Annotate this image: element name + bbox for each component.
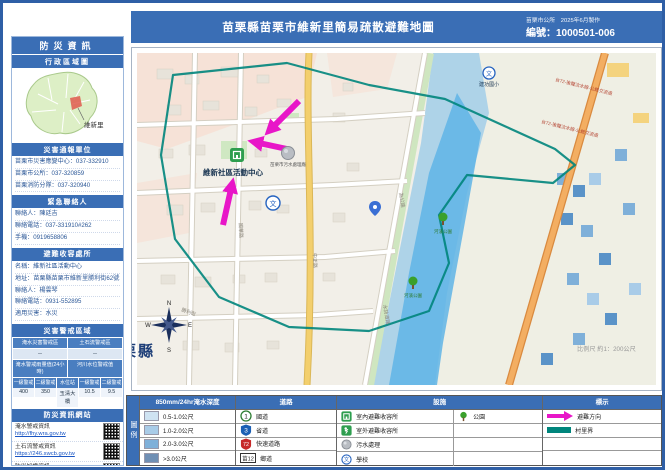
qr-code <box>103 463 120 466</box>
county-admin-map: 維新里 <box>12 69 123 141</box>
col-value: 400 <box>13 388 34 397</box>
title-bar: 苗栗縣苗栗市維新里簡易疏散避難地圖 苗栗市公所 2025年6月製作 編號：100… <box>131 11 662 43</box>
contact-line: 聯絡電話：037-331910#262 <box>15 221 120 233</box>
col-header: 一級警戒 <box>13 378 34 388</box>
shelter-line: 聯絡人：楊雲琴 <box>15 286 120 298</box>
flood-depth-label: >3.0公尺 <box>163 454 187 463</box>
facility-label: 公園 <box>473 412 485 421</box>
park-icon <box>458 411 469 422</box>
qr-code <box>103 443 120 460</box>
link-label: 土石流警戒資訊 <box>15 444 75 452</box>
flood-swatch <box>144 411 159 421</box>
flood-zone-value: － <box>13 349 67 359</box>
sidebar: 防災資訊 行政區域圖 維新里 災害通報單位 苗栗市災害應變中心：037-3329… <box>11 36 124 466</box>
county-watermark: 苗栗縣 <box>131 340 155 361</box>
legend-flood-column: 850mm/24hr淹水深度 0.5-1.0公尺 1.0-2.0公尺 2.0-3… <box>140 396 236 465</box>
facility-label: 室外避難收容所 <box>356 426 398 435</box>
col-header: 二級警戒 <box>35 378 56 388</box>
county-map-graphic: 維新里 <box>18 70 118 140</box>
shelter-line: 適用災害：水災 <box>15 309 120 321</box>
page-title: 苗栗縣苗栗市維新里簡易疏散避難地圖 <box>131 19 526 35</box>
contact-line: 手機：0919658806 <box>15 233 120 245</box>
scale-label: 比例尺 約1：200公尺 <box>577 345 636 353</box>
legend-marks-column: 標示 避難方向 村里界 <box>543 396 661 465</box>
marks-legend-header: 標示 <box>543 396 661 410</box>
expressway-icon: 72 <box>240 438 252 450</box>
col-header: 二級警戒 <box>101 378 122 388</box>
school-label: 建功國小 <box>479 81 499 88</box>
shelter-line: 聯絡電話：0931-552895 <box>15 297 120 309</box>
flood-swatch <box>144 453 159 463</box>
road-label: 省道 <box>256 426 268 435</box>
school-icon: 文 <box>341 454 352 465</box>
village-label: 維新里 <box>84 120 104 129</box>
contact-line: 聯絡人：陳廷吉 <box>15 209 120 221</box>
link-item: 淹水警戒資訊 http://fhy.wra.gov.tw <box>12 422 123 442</box>
col-header: 一級警戒 <box>79 378 100 388</box>
evacuation-map-page: 苗栗縣苗栗市維新里簡易疏散避難地圖 苗栗市公所 2025年6月製作 編號：100… <box>0 0 665 470</box>
link-url[interactable]: http://fhy.wra.gov.tw <box>15 431 66 439</box>
warning-threshold-table: 一級警戒400 二級警戒350 水位站玉清大橋 一級警戒10.5 二級警戒9.5 <box>13 378 122 407</box>
river-threshold-chip: 河川水位警戒值 <box>68 360 122 376</box>
legend-side-label: 圖例 <box>127 396 140 465</box>
indoor-shelter-icon <box>341 411 352 422</box>
street-label: 國華路 <box>237 223 245 238</box>
indoor-shelter-icon <box>230 148 244 162</box>
evacuation-direction-icon <box>547 413 573 420</box>
rain-threshold-chip: 淹水警戒雨量值(24小時) <box>13 360 67 376</box>
admin-map-title: 行政區域圖 <box>12 55 123 69</box>
col-header: 水位站 <box>57 378 78 388</box>
warning-zone-header: 災害警戒區域 <box>12 324 123 337</box>
svg-text:文: 文 <box>486 70 492 78</box>
village-boundary-icon <box>547 427 571 433</box>
col-value: 玉清大橋 <box>57 388 78 407</box>
link-item: 土石流警戒資訊 https://246.swcb.gov.tw <box>12 442 123 462</box>
link-url[interactable]: https://246.swcb.gov.tw <box>15 451 75 459</box>
report-line: 苗栗市災害應變中心：037-332910 <box>15 157 120 169</box>
compass-e: E <box>188 323 192 329</box>
shelter-line: 地址：苗栗縣苗栗市維新里勝利街62號1樓 <box>15 274 120 286</box>
contact-list: 聯絡人：陳廷吉 聯絡電話：037-331910#262 手機：091965880… <box>12 208 123 245</box>
outdoor-shelter-icon <box>341 425 352 436</box>
sewage-plant-icon <box>341 439 352 450</box>
link-item: 防災知識資訊 http://bobe168.tw <box>12 462 123 466</box>
shelter-line: 名稱：維新社區活動中心 <box>15 262 120 274</box>
road-label: 快速道路 <box>256 439 280 448</box>
sewage-plant-icon <box>282 147 295 160</box>
school-icon: 文 <box>483 67 495 79</box>
community-center-label: 維新社區活動中心 <box>203 167 263 177</box>
park-label: 河濱公園 <box>434 228 452 235</box>
park-label: 河濱公園 <box>404 292 422 299</box>
flood-depth-label: 0.5-1.0公尺 <box>163 412 194 421</box>
issuer-date: 苗栗市公所 2025年6月製作 <box>526 15 656 24</box>
svg-text:苗12: 苗12 <box>242 455 254 463</box>
facilities-legend-header: 設施 <box>337 396 542 410</box>
svg-text:3: 3 <box>244 427 248 434</box>
link-label: 防災知識資訊 <box>15 464 59 467</box>
debris-zone-value: － <box>68 349 122 359</box>
svg-text:1: 1 <box>244 414 248 421</box>
compass-w: W <box>145 323 151 329</box>
evacuation-map: 維新社區活動中心 文 文 建功國小 苗栗市污水處理廠 河濱公園 河濱公園 <box>137 53 656 385</box>
street-label: 中正路 <box>311 253 319 268</box>
mark-label: 村里界 <box>575 426 593 435</box>
flood-swatch <box>144 425 159 435</box>
flood-depth-label: 1.0-2.0公尺 <box>163 426 194 435</box>
qr-code <box>103 423 120 440</box>
svg-text:文: 文 <box>270 199 277 208</box>
doc-code-block: 苗栗市公所 2025年6月製作 編號：1000501-006 <box>526 15 662 39</box>
flood-legend-header: 850mm/24hr淹水深度 <box>140 396 235 410</box>
legend-bar: 圖例 850mm/24hr淹水深度 0.5-1.0公尺 1.0-2.0公尺 2.… <box>126 395 662 466</box>
flood-depth-label: 2.0-3.0公尺 <box>163 439 194 448</box>
roads-legend-header: 道路 <box>236 396 336 410</box>
report-line: 苗栗市公所：037-320859 <box>15 169 120 181</box>
national-highway-icon: 1 <box>240 410 252 422</box>
sewage-plant-label: 苗栗市污水處理廠 <box>270 161 306 168</box>
compass-n: N <box>167 301 171 307</box>
legend-facilities-column: 設施 室內避難收容所 室外避難收容所 污水處理 <box>337 396 543 465</box>
sidebar-title: 防災資訊 <box>12 37 123 55</box>
link-label: 淹水警戒資訊 <box>15 424 66 432</box>
contact-header: 緊急聯絡人 <box>12 195 123 208</box>
facility-label: 室內避難收容所 <box>356 412 398 421</box>
flood-zone-chip: 淹水災害警戒區 <box>13 338 67 348</box>
debris-zone-chip: 土石流警戒區 <box>68 338 122 348</box>
flood-swatch <box>144 439 159 449</box>
road-label: 鄉道 <box>260 454 272 463</box>
compass-s: S <box>167 348 171 354</box>
shelter-list: 名稱：維新社區活動中心 地址：苗栗縣苗栗市維新里勝利街62號1樓 聯絡人：楊雲琴… <box>12 261 123 322</box>
svg-text:72: 72 <box>243 442 249 448</box>
legend-roads-column: 道路 1 國道 3 省道 72 快速道路 苗12 鄉道 <box>236 396 337 465</box>
doc-number: 編號：1000501-006 <box>526 24 656 39</box>
col-value: 350 <box>35 388 56 397</box>
main-road <box>307 53 310 385</box>
provincial-highway-icon: 3 <box>240 424 252 436</box>
report-units-header: 災害通報單位 <box>12 143 123 156</box>
col-value: 9.5 <box>101 388 122 397</box>
school-icon: 文 <box>266 196 280 210</box>
facility-label: 污水處理 <box>356 440 380 449</box>
facility-label: 學校 <box>356 455 368 464</box>
svg-text:文: 文 <box>344 455 350 463</box>
links-header: 防災資訊網站 <box>12 409 123 422</box>
mark-label: 避難方向 <box>577 412 601 421</box>
col-value: 10.5 <box>79 388 100 397</box>
road-label: 國道 <box>256 412 268 421</box>
map-panel: 維新社區活動中心 文 文 建功國小 苗栗市污水處理廠 河濱公園 河濱公園 <box>131 47 662 391</box>
shelter-header: 避難收容處所 <box>12 248 123 261</box>
report-line: 苗栗消防分隊：037-320940 <box>15 181 120 193</box>
report-units-list: 苗栗市災害應變中心：037-332910 苗栗市公所：037-320859 苗栗… <box>12 156 123 193</box>
county-road-icon: 苗12 <box>240 453 256 463</box>
